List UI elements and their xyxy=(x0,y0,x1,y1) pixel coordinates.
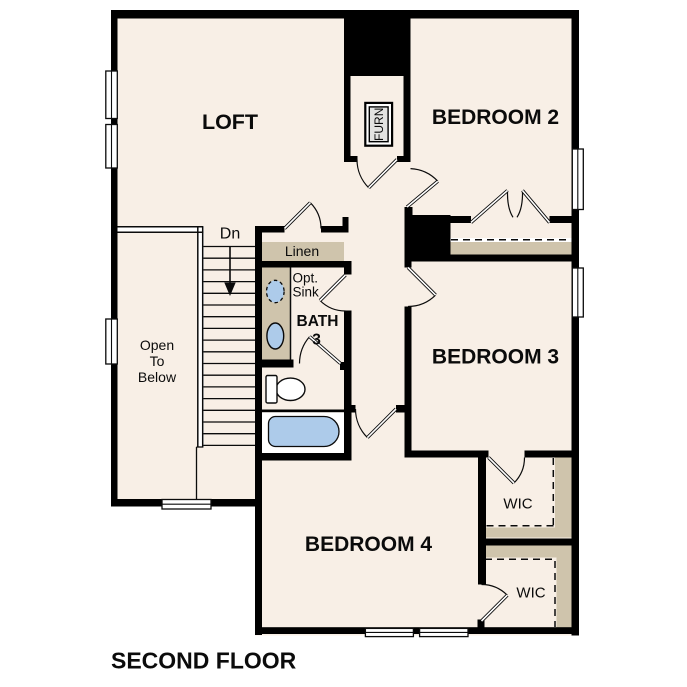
svg-text:BEDROOM 2: BEDROOM 2 xyxy=(432,106,559,129)
svg-text:Dn: Dn xyxy=(220,226,240,243)
svg-text:Open: Open xyxy=(140,337,174,353)
svg-text:Sink: Sink xyxy=(293,284,320,299)
svg-text:Opt.: Opt. xyxy=(293,271,319,286)
svg-text:WIC: WIC xyxy=(503,496,532,513)
svg-text:WIC: WIC xyxy=(516,585,545,602)
svg-text:BEDROOM 3: BEDROOM 3 xyxy=(432,346,559,369)
svg-text:FURN: FURN xyxy=(372,108,386,141)
svg-text:BATH: BATH xyxy=(297,313,339,330)
svg-text:To: To xyxy=(150,353,165,369)
svg-text:LOFT: LOFT xyxy=(202,110,258,134)
svg-text:SECOND FLOOR: SECOND FLOOR xyxy=(111,648,297,674)
svg-text:BEDROOM 4: BEDROOM 4 xyxy=(305,533,433,556)
svg-text:3: 3 xyxy=(312,331,321,348)
svg-text:Linen: Linen xyxy=(285,243,319,259)
svg-text:Below: Below xyxy=(138,369,177,385)
